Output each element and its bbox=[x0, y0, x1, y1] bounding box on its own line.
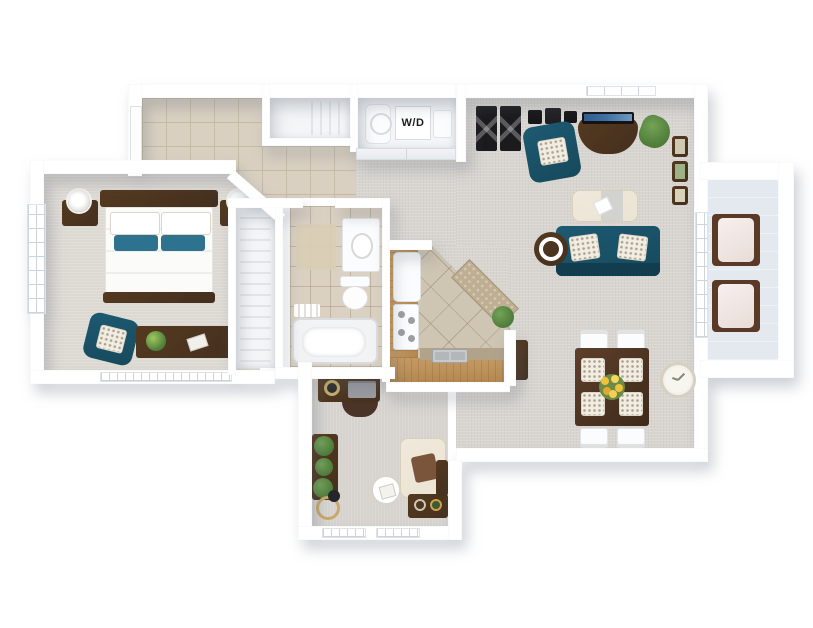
wall bbox=[30, 160, 44, 384]
potted-plant bbox=[635, 112, 674, 152]
dining-chair bbox=[580, 330, 608, 350]
dining-chair bbox=[580, 428, 608, 448]
living-window bbox=[586, 86, 656, 96]
bed-headboard bbox=[100, 190, 218, 207]
den-window bbox=[322, 528, 366, 538]
bathtub bbox=[292, 318, 378, 364]
bedroom-closet bbox=[236, 206, 275, 368]
tub-basin bbox=[302, 327, 366, 357]
sofa-pillow bbox=[568, 233, 600, 262]
washer-dryer-sign: W/D bbox=[395, 106, 431, 140]
teal-accent-pillow bbox=[114, 235, 158, 251]
picture-frame bbox=[672, 186, 688, 205]
dresser-decor bbox=[186, 333, 208, 351]
wire-shelf bbox=[311, 101, 347, 135]
serving-tray bbox=[539, 237, 563, 261]
dining-chair bbox=[617, 428, 645, 448]
wall bbox=[30, 370, 275, 384]
patio-cushion bbox=[718, 218, 754, 262]
sofa-pillow bbox=[617, 233, 649, 261]
patio-chair bbox=[712, 280, 760, 332]
bath-rug bbox=[296, 224, 336, 270]
bed-pillow bbox=[161, 212, 211, 235]
wall bbox=[298, 362, 312, 540]
laptop bbox=[348, 381, 376, 398]
towel-bar bbox=[294, 304, 320, 317]
burner bbox=[408, 335, 415, 342]
desk-decor bbox=[324, 380, 340, 396]
burner bbox=[408, 317, 415, 324]
bed-pillow bbox=[110, 212, 160, 235]
bedroom bbox=[44, 174, 260, 372]
dresser-plant bbox=[146, 331, 166, 351]
book bbox=[379, 483, 397, 499]
sink-basin bbox=[451, 352, 465, 360]
wall bbox=[275, 198, 283, 375]
plant bbox=[315, 458, 333, 476]
frame-art bbox=[675, 189, 685, 202]
wall bbox=[448, 460, 462, 540]
balcony-railing bbox=[700, 360, 794, 378]
burner bbox=[398, 329, 405, 336]
round-side-table bbox=[534, 232, 568, 266]
refrigerator bbox=[393, 252, 421, 302]
front-door bbox=[130, 106, 142, 170]
bathroom bbox=[290, 206, 382, 368]
balcony bbox=[700, 160, 796, 386]
side-cabinet bbox=[408, 494, 448, 518]
console-cabinet bbox=[508, 340, 528, 380]
washer bbox=[365, 104, 391, 144]
bed-footboard bbox=[103, 292, 215, 303]
tv bbox=[582, 112, 634, 124]
table-lamp bbox=[68, 190, 90, 212]
wall bbox=[455, 84, 708, 98]
vanity-sink bbox=[351, 233, 373, 259]
teal-armchair bbox=[522, 120, 583, 184]
washer-dryer-label: W/D bbox=[402, 117, 425, 129]
plant bbox=[314, 436, 334, 456]
desk-chair bbox=[342, 402, 378, 417]
teal-accent-pillow bbox=[161, 235, 205, 251]
washer-lid bbox=[370, 113, 392, 135]
frame-art bbox=[675, 139, 685, 154]
wall bbox=[694, 84, 708, 462]
kitchen bbox=[388, 246, 510, 392]
vanity bbox=[342, 218, 380, 272]
wire-shelving bbox=[240, 212, 271, 362]
bedroom-window bbox=[100, 372, 232, 382]
sofa-back bbox=[556, 263, 660, 276]
round-table bbox=[370, 474, 402, 506]
den-window bbox=[376, 528, 420, 538]
bookcase bbox=[436, 460, 448, 496]
place-setting bbox=[619, 358, 643, 382]
chair-pillow bbox=[95, 324, 127, 354]
hall-closet-floor bbox=[270, 98, 350, 140]
balcony-floor bbox=[708, 180, 782, 360]
floor-plan: W/D bbox=[0, 0, 813, 628]
place-setting bbox=[619, 392, 643, 416]
laundry-closet-floor: W/D bbox=[358, 98, 456, 150]
wall-clock bbox=[660, 362, 696, 398]
picture-frame bbox=[672, 161, 688, 182]
burner bbox=[398, 311, 405, 318]
range bbox=[393, 304, 419, 350]
dining-chair bbox=[617, 330, 645, 350]
dining-table bbox=[575, 348, 649, 426]
armchair-pillow bbox=[537, 137, 569, 166]
bar-plant bbox=[492, 306, 514, 328]
bar-stool bbox=[500, 106, 521, 151]
hall-carpet bbox=[390, 158, 456, 250]
picture-frame bbox=[672, 136, 688, 157]
teal-sofa bbox=[556, 226, 660, 276]
den-office bbox=[312, 376, 448, 528]
dresser bbox=[136, 326, 240, 358]
toilet-bowl bbox=[342, 286, 368, 310]
bedroom-window bbox=[27, 204, 46, 314]
floral-centerpiece bbox=[599, 374, 625, 400]
floor-lamp-shade bbox=[328, 490, 340, 502]
wall-shelf bbox=[528, 110, 542, 124]
wall bbox=[298, 526, 462, 540]
desk bbox=[318, 376, 380, 402]
tv-screen bbox=[584, 114, 632, 121]
ottoman-bench bbox=[572, 190, 638, 222]
decor-bowl bbox=[430, 499, 442, 511]
balcony-railing bbox=[700, 162, 794, 180]
decor-bowl bbox=[414, 499, 426, 511]
frame-art bbox=[675, 164, 685, 179]
teal-accent-chair bbox=[81, 311, 141, 368]
wall bbox=[128, 84, 142, 176]
dryer bbox=[433, 110, 452, 138]
balcony-railing bbox=[778, 162, 794, 378]
patio-cushion bbox=[718, 284, 754, 328]
bar-stool bbox=[476, 106, 497, 151]
patio-chair bbox=[712, 214, 760, 266]
french-door bbox=[695, 212, 708, 338]
wall bbox=[128, 84, 465, 98]
sink-basin bbox=[435, 352, 449, 360]
kitchen-sink bbox=[432, 349, 468, 363]
